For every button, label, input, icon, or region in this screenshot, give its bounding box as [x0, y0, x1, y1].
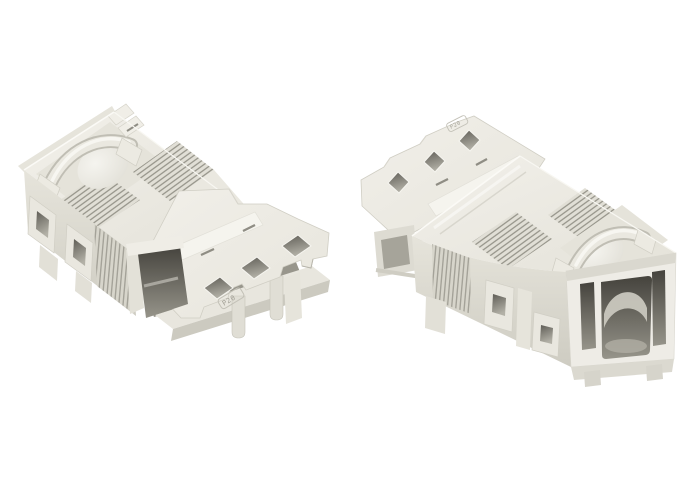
socket-side-slot	[652, 270, 666, 346]
mounting-foot	[425, 296, 446, 334]
release-hole	[540, 325, 553, 344]
shroud-opening	[381, 235, 410, 269]
mounting-foot	[646, 364, 663, 381]
guide-peg	[270, 276, 283, 320]
product-photo-canvas: White 2-pole snap-in plug connector, ang…	[0, 0, 697, 496]
frame-post	[516, 288, 532, 350]
cavity-floor	[605, 339, 647, 353]
frame-post	[284, 272, 302, 324]
mounting-foot	[584, 370, 601, 387]
product-photo: White 2-pole snap-in plug connector, ang…	[0, 0, 697, 496]
socket-side-slot	[580, 282, 596, 350]
